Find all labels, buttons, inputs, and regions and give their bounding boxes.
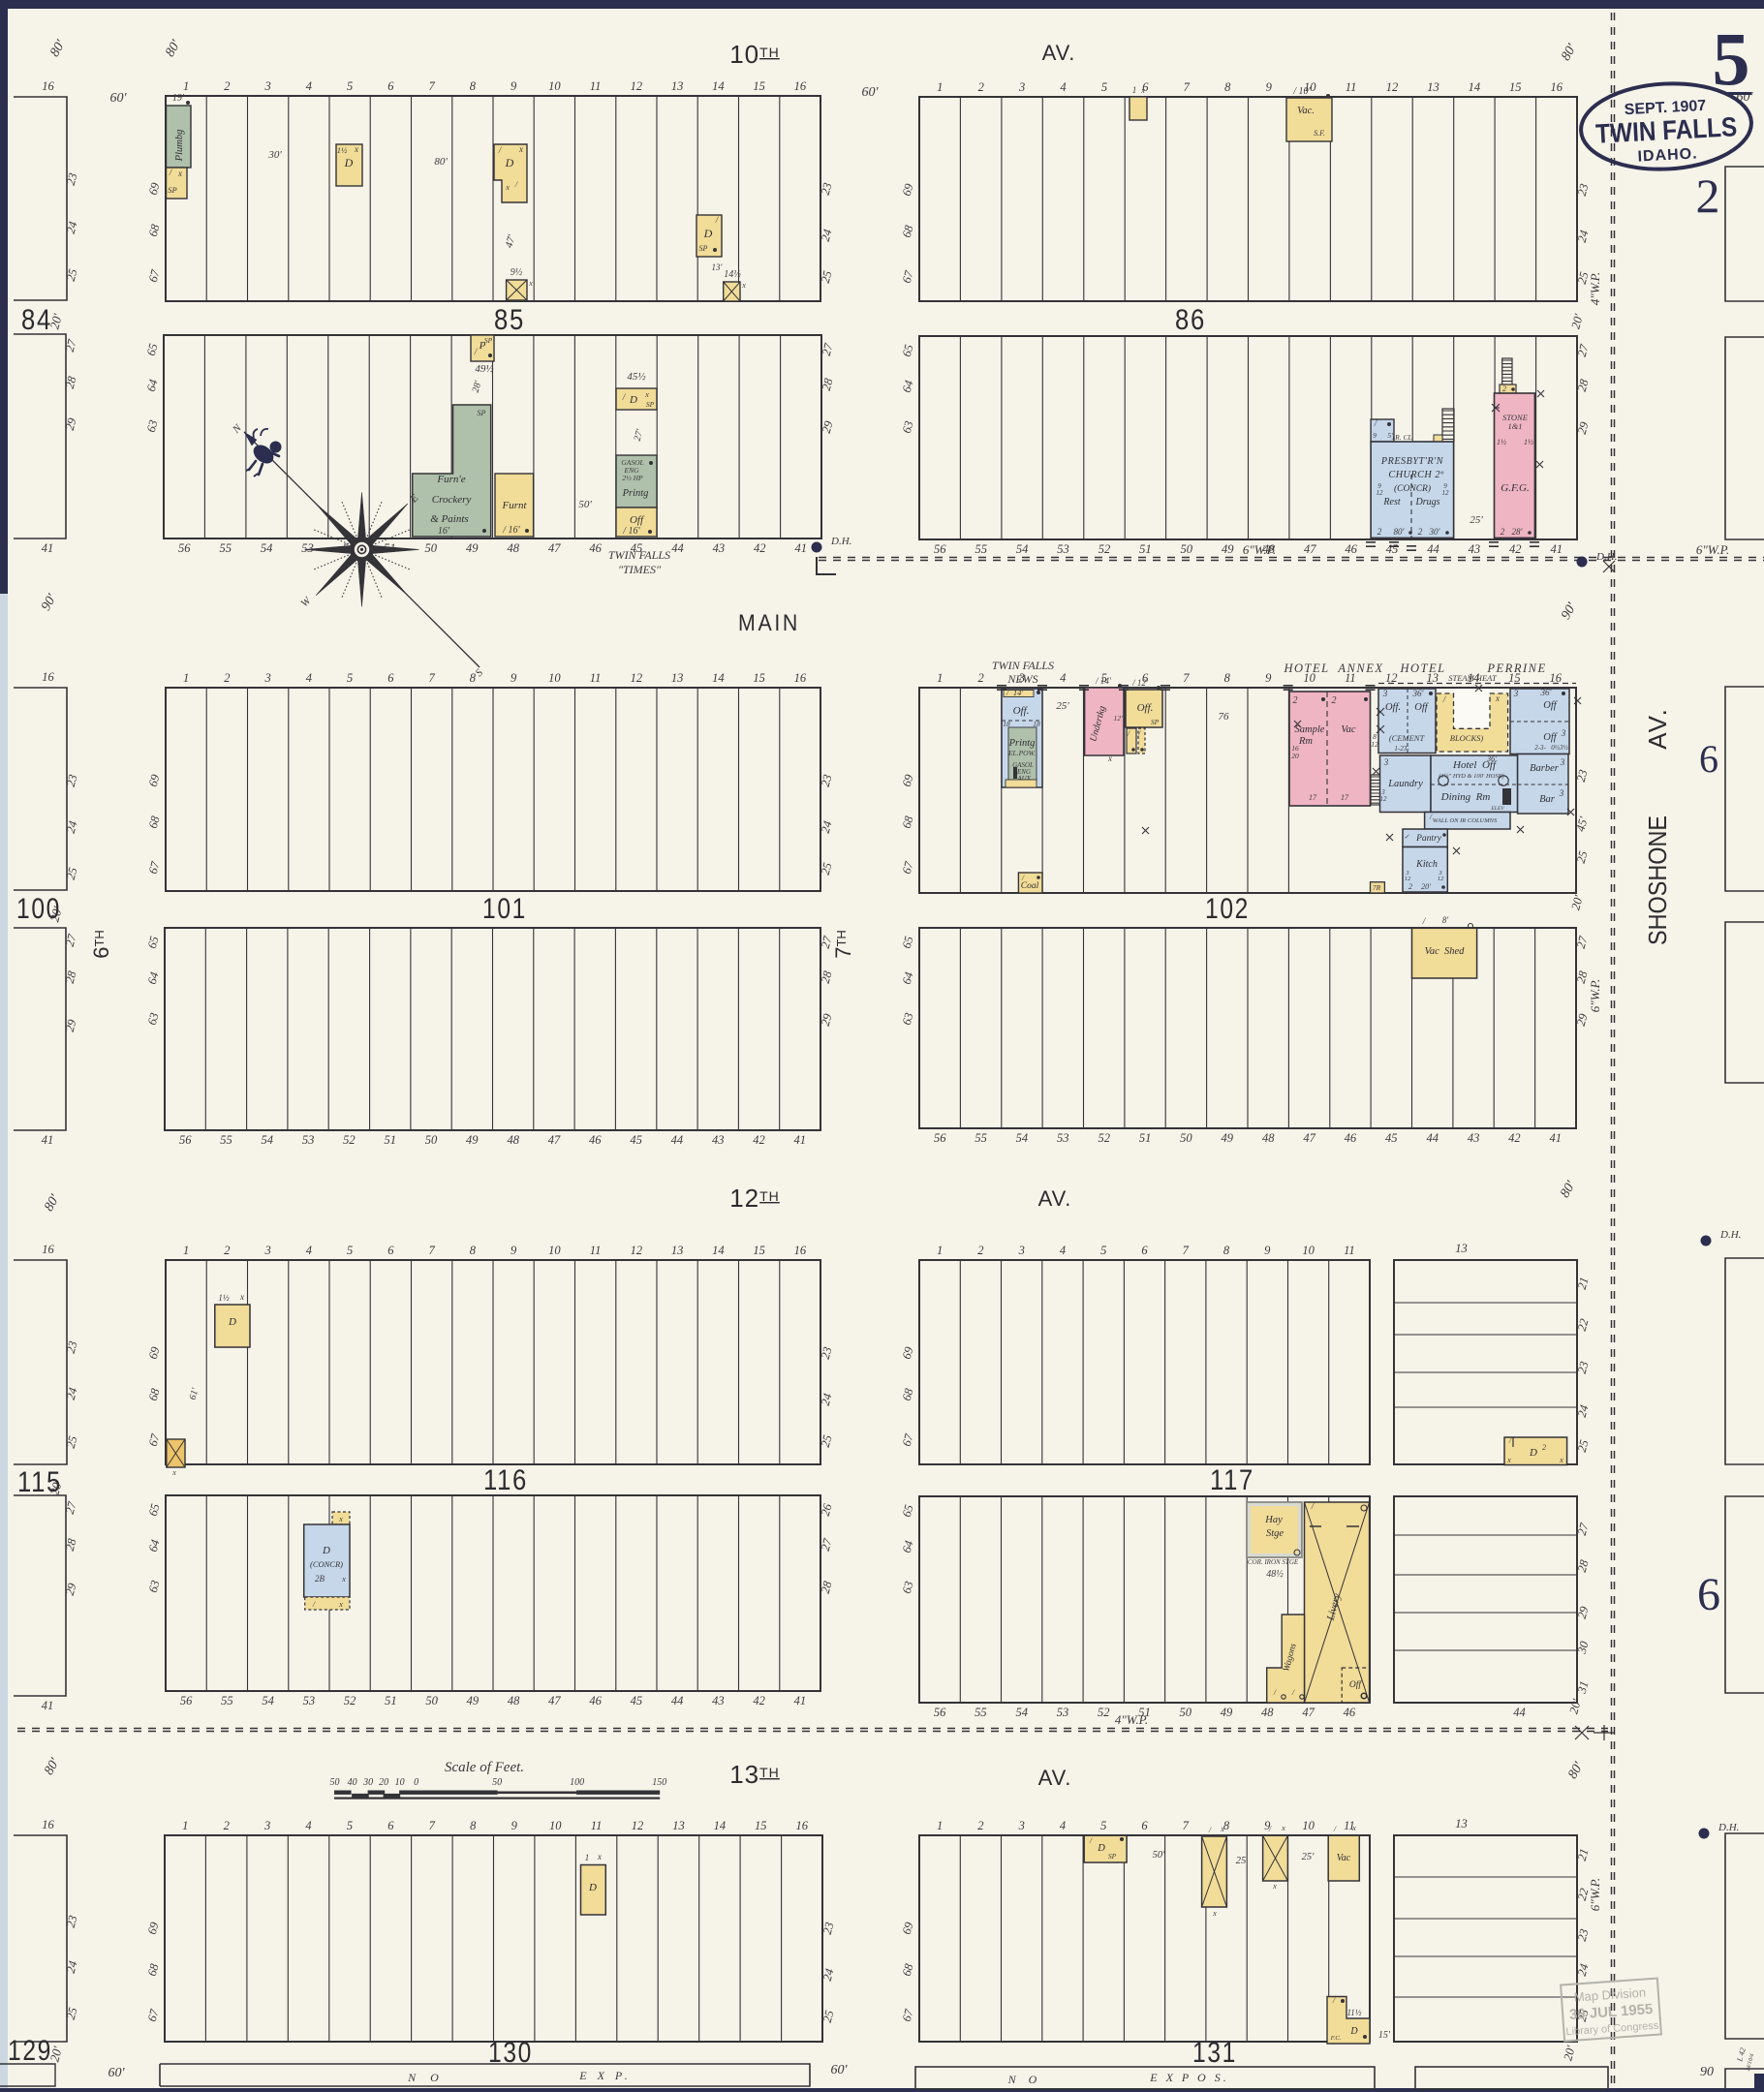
svg-text:50: 50 (1181, 542, 1193, 556)
svg-text:1: 1 (937, 1244, 943, 1257)
svg-text:Vac.: Vac. (1297, 106, 1315, 116)
svg-text:48: 48 (1262, 542, 1275, 556)
svg-text:7: 7 (1183, 1244, 1190, 1257)
svg-text:45½: 45½ (627, 371, 645, 383)
svg-text:AV.: AV. (1038, 1186, 1072, 1211)
svg-text:TWIN FALLS: TWIN FALLS (608, 548, 670, 562)
svg-text:13: 13 (672, 1819, 685, 1832)
svg-text:Barber: Barber (1530, 763, 1560, 774)
svg-text:50': 50' (578, 499, 592, 510)
svg-text:131: 131 (1192, 2037, 1237, 2069)
svg-text:41: 41 (42, 1699, 54, 1712)
svg-text:9½: 9½ (511, 267, 523, 278)
svg-text:45: 45 (631, 1694, 643, 1707)
svg-text:46: 46 (589, 1133, 602, 1147)
svg-text:Dining Rm: Dining Rm (1440, 791, 1491, 803)
svg-text:41: 41 (794, 1133, 807, 1147)
svg-text:8: 8 (470, 1244, 477, 1257)
svg-text:D.H.: D.H. (1718, 1822, 1739, 1833)
svg-text:x: x (341, 1575, 346, 1584)
svg-text:16: 16 (796, 1819, 809, 1832)
svg-text:12: 12 (631, 79, 643, 93)
svg-text:11: 11 (590, 1244, 602, 1257)
svg-text:60': 60' (108, 2066, 126, 2080)
svg-text:Printg: Printg (622, 488, 649, 499)
svg-text:42: 42 (1509, 542, 1522, 556)
svg-text:1-23-: 1-23- (1394, 745, 1409, 753)
svg-text:13': 13' (712, 262, 724, 272)
svg-text:2-3-: 2-3- (1534, 744, 1546, 752)
svg-text:42: 42 (753, 1133, 765, 1147)
svg-text:D: D (344, 156, 354, 169)
svg-text:20': 20' (1421, 882, 1431, 891)
svg-text:12': 12' (1113, 714, 1123, 723)
svg-text:0: 0 (414, 1777, 418, 1788)
svg-text:47: 47 (548, 1694, 561, 1707)
svg-text:Hay: Hay (1264, 1515, 1283, 1525)
svg-text:11: 11 (1344, 1244, 1355, 1257)
svg-text:52: 52 (1099, 542, 1111, 556)
svg-text:3: 3 (1559, 788, 1564, 798)
svg-text:55: 55 (219, 541, 232, 555)
svg-text:9: 9 (1265, 671, 1272, 685)
svg-text:D: D (629, 394, 637, 406)
svg-text:G.F.G.: G.F.G. (1501, 482, 1529, 494)
svg-text:SP: SP (1108, 1852, 1117, 1861)
svg-text:51: 51 (1139, 1131, 1152, 1145)
svg-text:1: 1 (585, 1853, 590, 1862)
svg-text:14: 14 (714, 1819, 727, 1832)
svg-text:2: 2 (1332, 695, 1337, 706)
svg-text:Rest: Rest (1382, 497, 1400, 508)
svg-text:CHURCH 2º: CHURCH 2º (1388, 470, 1444, 480)
svg-text:56: 56 (934, 1131, 946, 1145)
svg-text:2: 2 (1418, 527, 1423, 537)
svg-text:7: 7 (428, 1244, 435, 1257)
svg-text:10: 10 (548, 671, 561, 685)
svg-text:15: 15 (753, 79, 765, 93)
svg-text:x: x (1495, 693, 1500, 703)
svg-text:6"W.P.: 6"W.P. (1588, 979, 1602, 1012)
svg-text:/ 12': / 12' (1131, 678, 1149, 688)
svg-text:55: 55 (975, 1131, 987, 1145)
svg-text:/ 14': / 14' (1095, 676, 1112, 686)
svg-text:10: 10 (395, 1777, 405, 1788)
svg-text:10: 10 (548, 1244, 561, 1257)
svg-text:100: 100 (570, 1777, 584, 1788)
svg-text:14': 14' (1013, 688, 1024, 697)
svg-text:45: 45 (1385, 1131, 1398, 1145)
svg-text:52: 52 (344, 1694, 356, 1707)
svg-text:Kitch: Kitch (1415, 859, 1438, 870)
svg-text:SP: SP (168, 185, 176, 195)
svg-text:47: 47 (1304, 542, 1316, 556)
svg-text:30': 30' (1429, 527, 1441, 537)
svg-text:14: 14 (712, 79, 725, 93)
svg-text:0½3½: 0½3½ (1551, 744, 1568, 752)
svg-text:D.H.: D.H. (1595, 551, 1617, 563)
svg-text:12: 12 (1371, 740, 1378, 749)
svg-text:HOTEL: HOTEL (1399, 661, 1445, 675)
svg-text:6: 6 (1697, 1569, 1720, 1620)
svg-text:SP: SP (1151, 718, 1160, 726)
svg-text:60': 60' (831, 2063, 849, 2077)
svg-text:Furnt: Furnt (501, 500, 527, 511)
svg-text:x: x (1351, 1824, 1356, 1832)
svg-text:53: 53 (303, 1694, 316, 1707)
svg-text:11: 11 (591, 1819, 603, 1832)
svg-text:49: 49 (466, 1133, 479, 1147)
svg-text:9: 9 (1373, 431, 1377, 440)
svg-text:20: 20 (1291, 752, 1299, 760)
svg-text:x: x (1272, 1882, 1277, 1891)
svg-text:x: x (505, 183, 510, 192)
svg-text:COR. IRON STGE: COR. IRON STGE (1248, 1558, 1299, 1566)
svg-text:12: 12 (1442, 489, 1450, 497)
svg-text:4: 4 (1060, 671, 1066, 685)
svg-text:49½: 49½ (475, 363, 493, 375)
svg-text:12: 12 (1438, 876, 1444, 882)
svg-text:STEAM HEAT: STEAM HEAT (1448, 673, 1498, 683)
svg-text:47: 47 (1303, 1131, 1315, 1145)
svg-text:7: 7 (1183, 671, 1190, 685)
svg-text:D: D (228, 1316, 236, 1328)
svg-text:3: 3 (263, 1819, 270, 1832)
svg-text:43: 43 (712, 1694, 725, 1707)
svg-text:x: x (171, 1468, 176, 1477)
svg-text:52: 52 (1098, 1706, 1110, 1719)
svg-text:E X P.: E X P. (578, 2069, 631, 2082)
svg-text:D: D (1349, 2026, 1358, 2037)
svg-text:x: x (338, 1515, 343, 1523)
svg-text:1&1: 1&1 (1507, 421, 1522, 431)
svg-text:50: 50 (1180, 1706, 1192, 1719)
svg-text:50: 50 (330, 1777, 340, 1788)
svg-text:80': 80' (434, 156, 448, 168)
svg-text:52: 52 (343, 1133, 356, 1147)
svg-text:Vac Shed: Vac Shed (1425, 946, 1466, 957)
svg-text:53: 53 (1057, 1706, 1069, 1719)
svg-text:53: 53 (301, 541, 314, 555)
svg-text:46: 46 (589, 1694, 602, 1707)
svg-text:MAIN: MAIN (738, 610, 800, 636)
svg-text:54: 54 (262, 1133, 274, 1147)
svg-text:43: 43 (712, 1133, 725, 1147)
svg-text:15: 15 (753, 1244, 765, 1257)
svg-text:5: 5 (347, 1244, 353, 1257)
svg-text:F.C.: F.C. (1330, 2035, 1342, 2042)
svg-text:2: 2 (1377, 527, 1382, 537)
svg-text:2: 2 (978, 80, 984, 94)
svg-text:10: 10 (548, 79, 561, 93)
svg-text:13: 13 (1455, 1817, 1468, 1830)
svg-text:53: 53 (302, 1133, 315, 1147)
svg-text:1R. CL.: 1R. CL. (1391, 433, 1413, 442)
svg-text:D: D (505, 156, 514, 169)
svg-text:50: 50 (492, 1777, 502, 1788)
svg-text:3: 3 (263, 79, 270, 93)
svg-text:30': 30' (267, 149, 282, 161)
svg-text:51: 51 (384, 1133, 396, 1147)
svg-text:13: 13 (671, 1244, 684, 1257)
svg-text:AV.: AV. (1042, 41, 1076, 65)
svg-text:8': 8' (1442, 915, 1450, 925)
svg-text:Coal: Coal (1021, 881, 1039, 891)
svg-text:11½: 11½ (1346, 2008, 1361, 2017)
svg-text:55: 55 (220, 1133, 232, 1147)
svg-text:"TIMES": "TIMES" (618, 563, 662, 576)
svg-text:14: 14 (712, 1244, 725, 1257)
svg-text:6: 6 (387, 1819, 394, 1832)
svg-text:3: 3 (1560, 757, 1565, 767)
svg-text:50: 50 (425, 1694, 438, 1707)
svg-text:50: 50 (1180, 1131, 1192, 1145)
svg-text:2: 2 (1501, 527, 1505, 537)
svg-text:AV.: AV. (1643, 707, 1672, 750)
svg-text:x: x (338, 1600, 343, 1609)
svg-text:51: 51 (1139, 542, 1152, 556)
svg-text:x: x (1281, 1824, 1285, 1832)
svg-text:Off: Off (1543, 732, 1559, 743)
svg-text:47: 47 (548, 541, 561, 555)
svg-text:49: 49 (1222, 542, 1234, 556)
svg-text:10: 10 (1302, 1819, 1315, 1832)
svg-text:41: 41 (794, 1694, 807, 1707)
svg-text:✓: ✓ (1404, 833, 1409, 841)
svg-text:48: 48 (507, 541, 519, 555)
svg-text:x: x (1559, 1456, 1563, 1464)
svg-text:4: 4 (1060, 80, 1066, 94)
svg-text:8: 8 (1223, 1819, 1230, 1832)
svg-text:12: 12 (1380, 795, 1388, 803)
svg-text:3: 3 (1383, 757, 1389, 767)
svg-text:25': 25' (1302, 1852, 1315, 1862)
svg-text:7R: 7R (1373, 883, 1381, 892)
svg-text:Off.: Off. (1013, 705, 1030, 717)
svg-text:6: 6 (387, 79, 394, 93)
svg-text:76: 76 (1219, 711, 1230, 723)
svg-text:1: 1 (937, 80, 943, 94)
svg-text:AV.: AV. (1038, 1766, 1072, 1790)
svg-text:Printg: Printg (1008, 738, 1036, 749)
svg-text:2: 2 (224, 79, 230, 93)
svg-text:x: x (1506, 1456, 1511, 1464)
svg-text:25': 25' (1056, 700, 1069, 712)
svg-text:129: 129 (8, 2035, 52, 2067)
svg-text:42: 42 (1508, 1131, 1521, 1145)
svg-text:43: 43 (1468, 1131, 1480, 1145)
svg-text:84: 84 (21, 304, 52, 336)
svg-text:17: 17 (1309, 793, 1317, 802)
svg-text:15: 15 (1509, 80, 1522, 94)
svg-text:1½: 1½ (337, 145, 348, 155)
svg-text:3: 3 (1018, 80, 1025, 94)
svg-text:40: 40 (348, 1777, 357, 1788)
svg-text:Pantry: Pantry (1415, 834, 1442, 844)
svg-text:D: D (588, 1882, 597, 1893)
svg-text:3: 3 (1382, 689, 1388, 698)
svg-text:14½: 14½ (724, 269, 741, 280)
svg-text:4: 4 (1060, 1819, 1066, 1832)
svg-text:1: 1 (183, 671, 189, 685)
svg-text:SP: SP (478, 409, 486, 417)
svg-text:42: 42 (754, 541, 766, 555)
svg-text:1: 1 (183, 79, 189, 93)
svg-text:Furn'e: Furn'e (436, 474, 465, 485)
svg-text:Crockery: Crockery (432, 494, 472, 506)
svg-text:101: 101 (482, 893, 527, 925)
svg-text:5: 5 (1101, 80, 1107, 94)
svg-text:8: 8 (1224, 80, 1231, 94)
svg-text:41: 41 (42, 1133, 54, 1147)
svg-text:x: x (177, 169, 182, 178)
svg-text:46: 46 (1345, 1131, 1357, 1145)
svg-text:NEWS: NEWS (1006, 672, 1037, 686)
svg-text:10: 10 (549, 1819, 562, 1832)
svg-text:1: 1 (1132, 85, 1137, 95)
svg-text:90: 90 (1700, 2065, 1714, 2079)
svg-text:54: 54 (1015, 1706, 1028, 1719)
svg-text:SHOSHONE: SHOSHONE (1643, 815, 1672, 945)
svg-text:2½ HP: 2½ HP (622, 474, 643, 482)
svg-text:6: 6 (1699, 737, 1718, 781)
svg-text:5: 5 (347, 79, 353, 93)
svg-text:Off: Off (630, 514, 645, 526)
svg-text:x: x (354, 144, 358, 154)
svg-text:102: 102 (1205, 893, 1250, 925)
svg-text:53: 53 (1057, 1131, 1069, 1145)
svg-text:5: 5 (347, 671, 353, 685)
svg-text:50': 50' (1153, 1850, 1166, 1861)
svg-text:45: 45 (630, 1133, 642, 1147)
svg-text:44: 44 (1427, 542, 1439, 556)
svg-text:13: 13 (671, 671, 684, 685)
svg-text:12: 12 (631, 1244, 643, 1257)
svg-text:56: 56 (178, 541, 191, 555)
svg-text:14: 14 (1469, 80, 1481, 94)
svg-text:6: 6 (1141, 1244, 1148, 1257)
svg-text:25': 25' (1470, 514, 1483, 526)
svg-text:48: 48 (1262, 1131, 1275, 1145)
svg-text:1½: 1½ (218, 1293, 230, 1303)
svg-text:16: 16 (42, 79, 54, 93)
svg-text:150: 150 (652, 1777, 666, 1788)
svg-text:1½: 1½ (1524, 438, 1533, 446)
svg-text:x: x (528, 279, 533, 288)
svg-text:Scale of Feet.: Scale of Feet. (445, 1760, 524, 1775)
svg-text:43: 43 (1469, 542, 1481, 556)
svg-text:16': 16' (438, 526, 450, 537)
svg-text:9: 9 (511, 79, 517, 93)
svg-text:6: 6 (1141, 1819, 1148, 1832)
svg-text:16: 16 (794, 79, 807, 93)
svg-text:16: 16 (794, 671, 807, 685)
svg-text:54: 54 (1016, 1131, 1029, 1145)
svg-text:11: 11 (590, 671, 602, 685)
svg-text:9: 9 (511, 671, 517, 685)
svg-text:HOTEL ANNEX: HOTEL ANNEX (1284, 661, 1384, 675)
svg-text:13: 13 (1427, 80, 1439, 94)
svg-text:44: 44 (671, 1133, 684, 1147)
svg-text:Off: Off (1349, 1679, 1363, 1690)
svg-text:D.H.: D.H. (1719, 1229, 1741, 1241)
svg-text:Off: Off (1414, 702, 1430, 713)
svg-text:9: 9 (1264, 1244, 1271, 1257)
svg-text:9: 9 (1266, 80, 1273, 94)
svg-text:48: 48 (1261, 1706, 1274, 1719)
svg-text:5: 5 (1100, 1244, 1106, 1257)
svg-text:13: 13 (1455, 1242, 1468, 1255)
svg-text:42: 42 (753, 1694, 765, 1707)
svg-text:Drugs: Drugs (1414, 497, 1439, 508)
svg-text:51: 51 (385, 1694, 397, 1707)
svg-text:x: x (518, 144, 523, 154)
svg-text:x: x (1212, 1909, 1217, 1918)
svg-text:2: 2 (977, 671, 983, 685)
svg-text:15: 15 (753, 671, 765, 685)
svg-text:Stge: Stge (1266, 1528, 1284, 1539)
svg-text:4: 4 (1060, 1244, 1066, 1257)
svg-text:54: 54 (261, 541, 273, 555)
svg-text:47: 47 (1302, 1706, 1315, 1719)
svg-text:36': 36' (1486, 754, 1497, 763)
svg-text:6: 6 (387, 671, 394, 685)
svg-text:N O: N O (1007, 2073, 1042, 2086)
svg-text:41: 41 (1551, 542, 1563, 556)
svg-text:Vac: Vac (1337, 1853, 1351, 1863)
svg-text:2B: 2B (315, 1574, 325, 1584)
svg-text:x: x (644, 390, 649, 399)
svg-text:53: 53 (1057, 542, 1069, 556)
svg-text:49: 49 (1222, 1131, 1234, 1145)
svg-text:55: 55 (975, 542, 987, 556)
svg-text:4: 4 (306, 1244, 312, 1257)
svg-text:2: 2 (1542, 1443, 1546, 1452)
svg-text:15: 15 (755, 1819, 767, 1832)
svg-text:52: 52 (1098, 1131, 1110, 1145)
svg-text:11: 11 (590, 79, 602, 93)
svg-text:56: 56 (180, 1694, 193, 1707)
svg-text:1: 1 (937, 1819, 943, 1832)
svg-text:46: 46 (1345, 542, 1357, 556)
svg-text:2: 2 (1408, 882, 1412, 891)
svg-text:3: 3 (1561, 728, 1566, 738)
svg-text:N O: N O (407, 2071, 445, 2084)
svg-text:3: 3 (263, 671, 270, 685)
svg-text:36': 36' (1412, 689, 1425, 698)
svg-text:41: 41 (1550, 1131, 1563, 1145)
svg-text:46: 46 (589, 541, 602, 555)
svg-text:5: 5 (347, 1819, 353, 1832)
svg-text:S.F.: S.F. (1314, 129, 1325, 138)
svg-text:2: 2 (224, 671, 230, 685)
svg-text:12: 12 (632, 1819, 644, 1832)
svg-text:51: 51 (1138, 1706, 1151, 1719)
svg-text:EL.POW.: EL.POW. (1007, 749, 1036, 757)
svg-text:D: D (1097, 1843, 1105, 1854)
svg-text:12: 12 (1377, 489, 1384, 497)
svg-text:4: 4 (305, 1819, 311, 1832)
svg-text:47: 47 (548, 1133, 561, 1147)
svg-text:1: 1 (937, 671, 943, 685)
svg-text:4: 4 (306, 79, 312, 93)
svg-text:20: 20 (379, 1777, 388, 1788)
svg-text:28': 28' (1512, 527, 1524, 537)
svg-text:5: 5 (1100, 1819, 1106, 1832)
svg-text:BLOCKS): BLOCKS) (1450, 733, 1484, 743)
svg-text:Vac: Vac (1341, 724, 1356, 735)
svg-text:x: x (239, 1292, 244, 1302)
